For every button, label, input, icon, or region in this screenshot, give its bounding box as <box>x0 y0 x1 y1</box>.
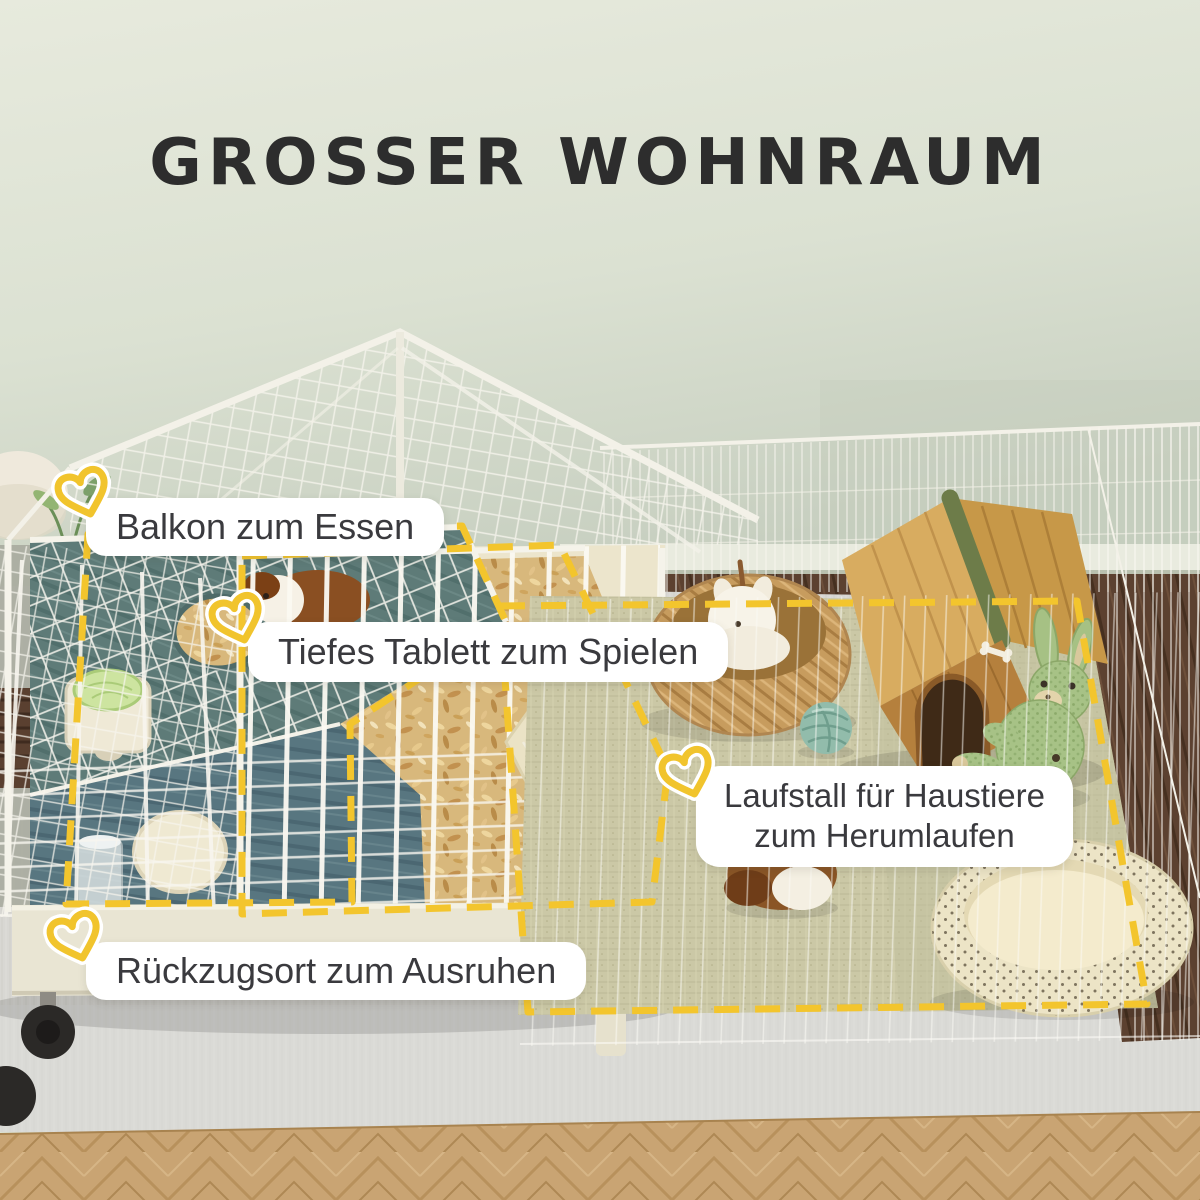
callout-tray-label: Tiefes Tablett zum Spielen <box>278 631 698 673</box>
callout-playpen-label-line1: Laufstall für Haustiere <box>724 776 1045 816</box>
callout-playpen: Laufstall für Haustiere zum Herumlaufen <box>696 766 1073 867</box>
callout-retreat-label: Rückzugsort zum Ausruhen <box>116 950 556 992</box>
product-marketing-image: GROSSER WOHNRAUM Balkon zum Essen Tiefes… <box>0 0 1200 1200</box>
page-title: GROSSER WOHNRAUM <box>0 126 1200 200</box>
callout-balcony: Balkon zum Essen <box>86 498 444 556</box>
callout-retreat: Rückzugsort zum Ausruhen <box>86 942 586 1000</box>
callout-playpen-label-line2: zum Herumlaufen <box>754 816 1014 856</box>
callout-tray: Tiefes Tablett zum Spielen <box>248 622 728 682</box>
callout-balcony-label: Balkon zum Essen <box>116 506 414 548</box>
